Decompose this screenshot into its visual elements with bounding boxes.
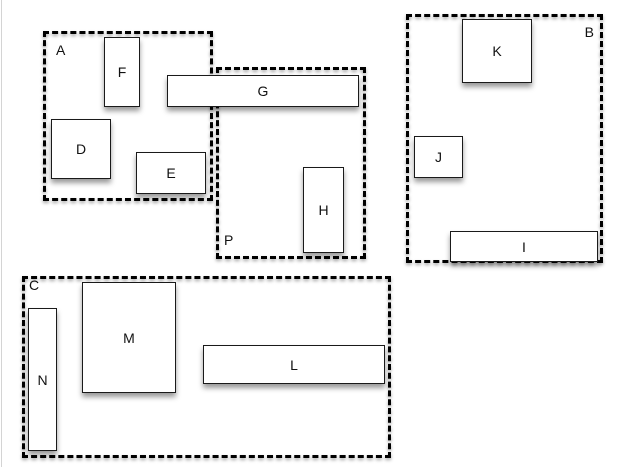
box-i-label: I — [522, 239, 526, 255]
diagram-canvas: A B C P F G D E H K J I M N — [0, 0, 623, 476]
box-m[interactable]: M — [82, 282, 176, 393]
box-k-label: K — [492, 43, 501, 59]
box-n-label: N — [37, 372, 47, 388]
box-j[interactable]: J — [414, 136, 463, 178]
box-g-label: G — [258, 83, 269, 99]
box-d[interactable]: D — [51, 119, 111, 179]
box-h[interactable]: H — [303, 167, 344, 253]
box-n[interactable]: N — [28, 308, 57, 451]
box-l-label: L — [290, 357, 298, 373]
box-m-label: M — [123, 330, 135, 346]
box-l[interactable]: L — [203, 345, 385, 384]
box-k[interactable]: K — [462, 19, 532, 83]
box-e[interactable]: E — [136, 152, 206, 194]
box-h-label: H — [318, 202, 328, 218]
box-j-label: J — [435, 149, 442, 165]
box-e-label: E — [166, 165, 175, 181]
box-f[interactable]: F — [104, 37, 140, 107]
box-d-label: D — [76, 141, 86, 157]
group-p-label: P — [224, 233, 233, 247]
group-a-label: A — [56, 43, 65, 57]
screen-edge-line — [1, 0, 2, 467]
group-c-label: C — [29, 278, 39, 292]
box-f-label: F — [118, 64, 127, 80]
group-b-label: B — [585, 25, 594, 39]
box-i[interactable]: I — [450, 231, 598, 262]
box-g[interactable]: G — [167, 75, 359, 107]
